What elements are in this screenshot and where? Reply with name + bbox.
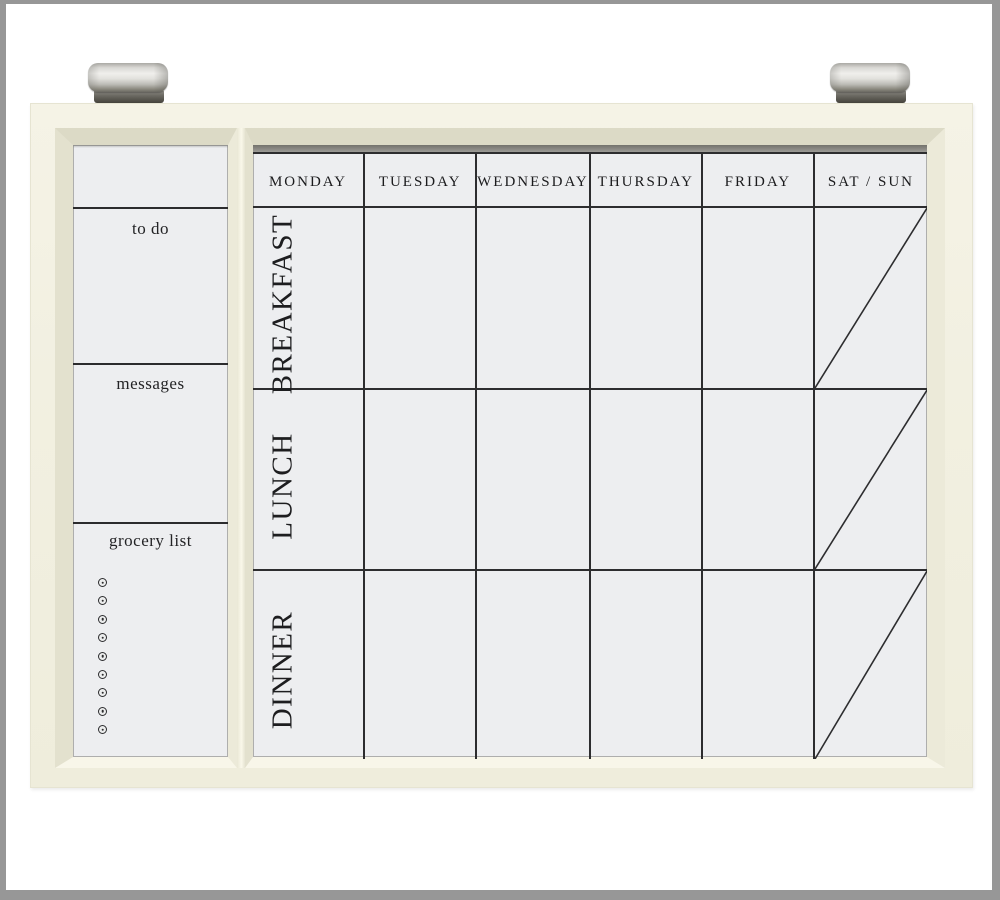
sidebar-separator-3 [73,522,228,524]
day-header-wednesday: WEDNESDAY [477,154,591,208]
photo-border-left [0,0,6,900]
magnet-dot-icon [98,707,107,716]
photo-border-top [0,0,1000,4]
cell-tuesday-breakfast [365,208,477,390]
cell-sat-sun-breakfast [815,208,927,390]
cell-sat-sun-dinner [815,571,927,759]
calendar-opening: MONDAYTUESDAYWEDNESDAYTHURSDAYFRIDAYSAT … [245,128,945,768]
cell-wednesday-dinner [477,571,591,759]
cell-friday-dinner [703,571,815,759]
cell-wednesday-breakfast [477,208,591,390]
weekend-diagonal-icon [815,571,927,759]
cell-tuesday-dinner [365,571,477,759]
sidebar-top-shadow [73,145,228,148]
cell-thursday-breakfast [591,208,703,390]
day-header-tuesday: TUESDAY [365,154,477,208]
photo-border-right [992,0,1000,900]
day-header-friday: FRIDAY [703,154,815,208]
cell-friday-lunch [703,390,815,571]
metal-clip-cylinder [88,63,168,92]
metal-clip-icon-left [88,63,168,103]
magnet-dot-icon [98,633,107,642]
sidebar-surface: to do messages grocery list [73,145,228,757]
day-header-monday: MONDAY [253,154,365,208]
cell-friday-breakfast [703,208,815,390]
day-header-thursday: THURSDAY [591,154,703,208]
cell-tuesday-lunch [365,390,477,571]
day-header-sat-sun: SAT / SUN [815,154,927,208]
magnet-dot-icon [98,688,107,697]
cell-wednesday-lunch [477,390,591,571]
magnet-dot-icon [98,615,107,624]
frame-divider [237,128,245,768]
meal-row-label-breakfast: BREAKFAST [267,214,300,395]
metal-clip-cylinder [830,63,910,92]
weekend-diagonal-icon [815,208,927,388]
magnet-dot-icon [98,725,107,734]
calendar-grid: MONDAYTUESDAYWEDNESDAYTHURSDAYFRIDAYSAT … [253,152,927,757]
sidebar-label-grocery: grocery list [103,531,199,551]
cell-sat-sun-lunch [815,390,927,571]
magnet-dot-icon [98,652,107,661]
photo-border-bottom [0,890,1000,900]
sidebar-label-todo: to do [103,219,199,239]
weekend-diagonal-icon [815,390,927,569]
whiteboard-planner-photo: to do messages grocery list MONDAYTUESDA… [0,0,1000,900]
magnet-dot-icon [98,596,107,605]
cell-thursday-lunch [591,390,703,571]
sidebar-label-messages: messages [103,374,199,394]
magnet-dot-icon [98,670,107,679]
meal-row-label-lunch: LUNCH [267,432,300,539]
magnet-dot-icon [98,578,107,587]
sidebar-separator-1 [73,207,228,209]
sidebar-separator-2 [73,363,228,365]
calendar-surface: MONDAYTUESDAYWEDNESDAYTHURSDAYFRIDAYSAT … [253,145,927,757]
meal-row-label-dinner: DINNER [267,611,300,730]
metal-clip-icon-right [830,63,910,103]
sidebar-opening: to do messages grocery list [55,128,237,768]
cell-thursday-dinner [591,571,703,759]
calendar-top-shadow [253,145,927,152]
